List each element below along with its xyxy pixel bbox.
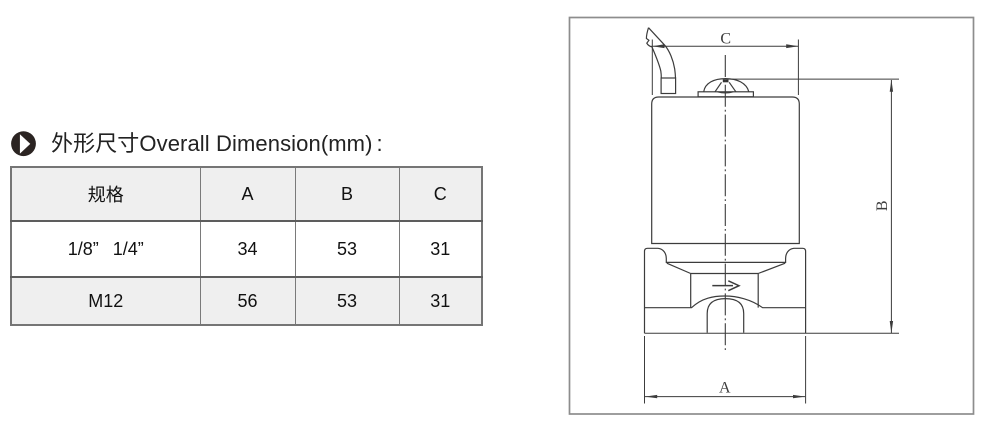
svg-text:B: B <box>874 200 891 211</box>
svg-text:C: C <box>720 31 731 48</box>
svg-text:A: A <box>719 379 731 396</box>
